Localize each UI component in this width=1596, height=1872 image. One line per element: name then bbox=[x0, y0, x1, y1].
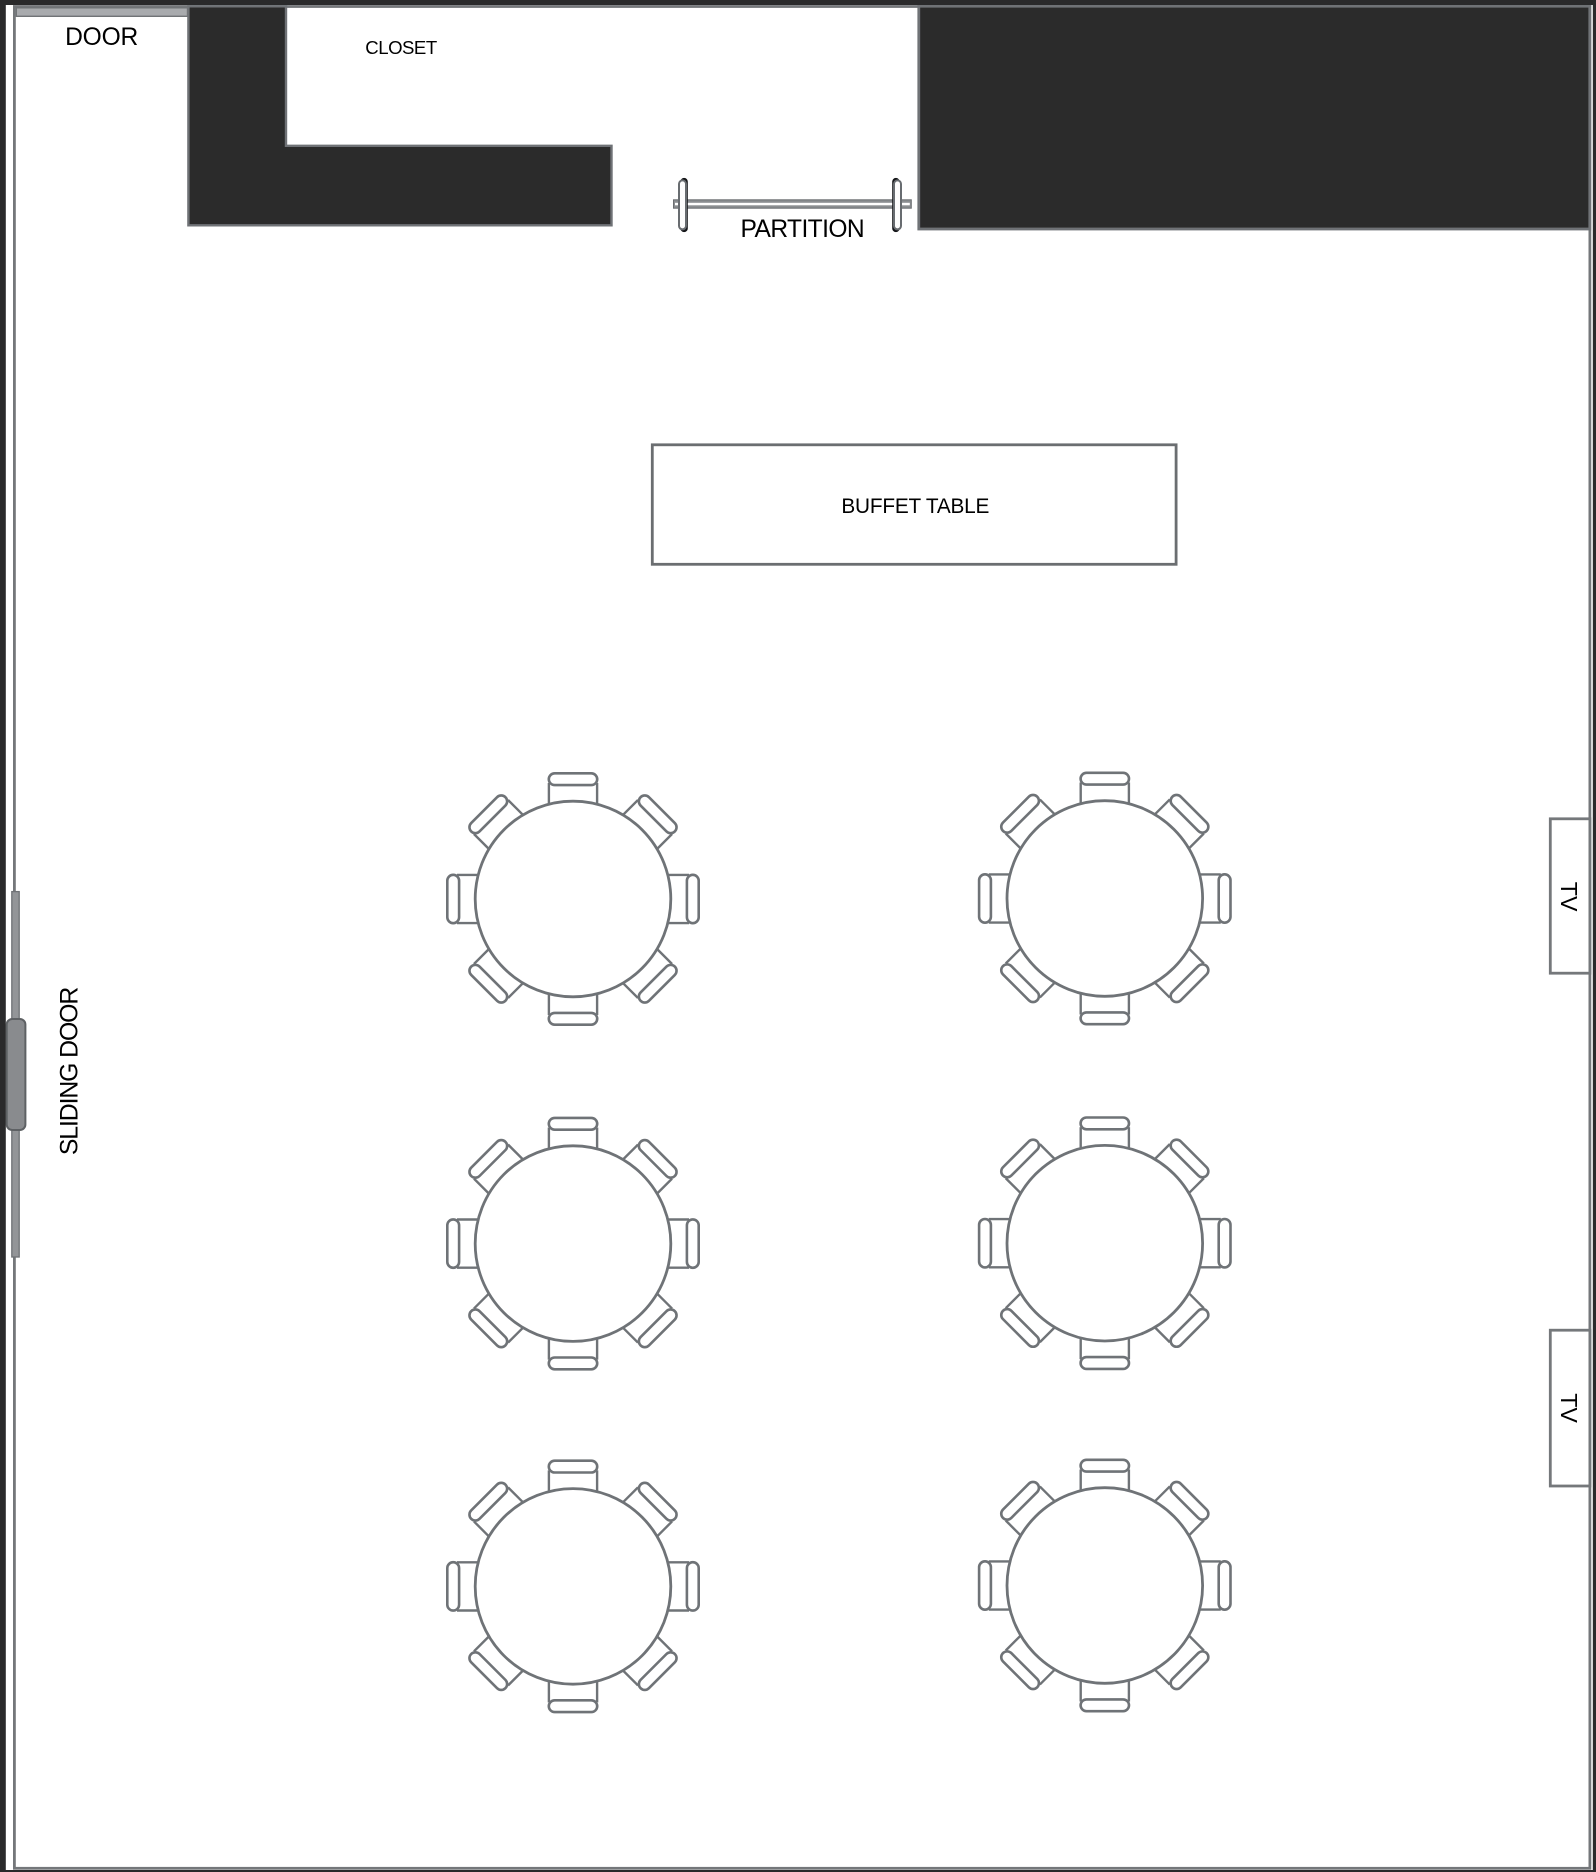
svg-text:SLIDING DOOR: SLIDING DOOR bbox=[57, 988, 84, 1155]
svg-text:TV: TV bbox=[1556, 1393, 1582, 1423]
svg-text:PARTITION: PARTITION bbox=[741, 216, 865, 243]
svg-text:BUFFET TABLE: BUFFET TABLE bbox=[841, 495, 989, 518]
svg-text:DOOR: DOOR bbox=[65, 24, 138, 51]
svg-text:TV: TV bbox=[1556, 882, 1582, 912]
svg-text:CLOSET: CLOSET bbox=[365, 37, 437, 58]
